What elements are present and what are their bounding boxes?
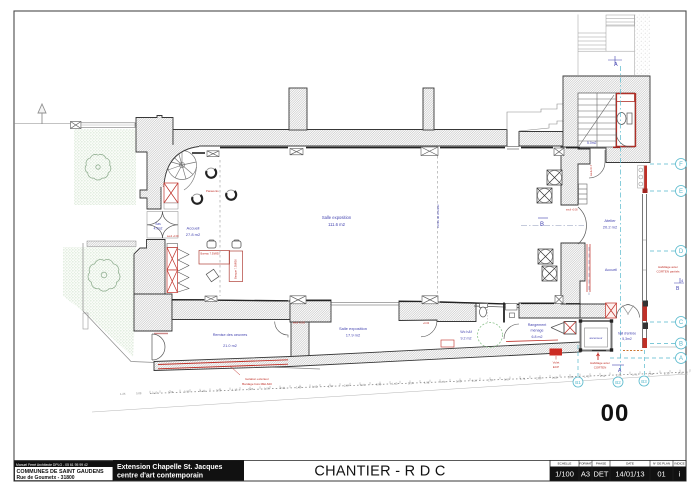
svg-text:Isolation extérieur: Isolation extérieur [245, 377, 269, 381]
svg-text:Salle exposition: Salle exposition [339, 326, 367, 331]
svg-text:Rangement: Rangement [528, 323, 547, 327]
svg-text:2.16: 2.16 [408, 381, 414, 385]
svg-text:Salle exposition: Salle exposition [322, 215, 352, 220]
svg-text:2.38: 2.38 [536, 376, 542, 380]
svg-text:B2: B2 [615, 380, 621, 385]
svg-text:A: A [614, 62, 618, 68]
svg-text:Sas: Sas [155, 222, 161, 226]
svg-text:00: 00 [601, 400, 630, 427]
svg-text:Banque 7.39/830: Banque 7.39/830 [234, 259, 238, 279]
svg-text:COMMUNES DE SAINT GAUDENS: COMMUNES DE SAINT GAUDENS [17, 469, 105, 475]
svg-text:seuil +0.00: seuil +0.00 [293, 322, 306, 325]
svg-text:F: F [679, 162, 683, 168]
svg-text:5.0m2: 5.0m2 [587, 141, 597, 145]
svg-text:A3: A3 [581, 470, 590, 479]
svg-text:ECP: ECP [553, 365, 559, 369]
svg-text:1.17: 1.17 [678, 371, 684, 375]
svg-text:N° DE PLAN: N° DE PLAN [653, 462, 670, 466]
svg-text:CORTEN: CORTEN [594, 366, 607, 370]
svg-text:0.83: 0.83 [568, 375, 574, 379]
svg-text:Volet: Volet [553, 361, 560, 365]
svg-text:2.27: 2.27 [472, 379, 478, 383]
svg-text:0.95: 0.95 [184, 389, 190, 393]
svg-text:INDICE: INDICE [674, 462, 684, 466]
svg-text:2.12: 2.12 [600, 374, 606, 378]
svg-text:1.06: 1.06 [616, 373, 622, 377]
svg-text:Bureau 7.39/830: Bureau 7.39/830 [201, 252, 221, 256]
svg-text:6.8 m2: 6.8 m2 [532, 335, 543, 339]
svg-text:Extension Chapelle St. Jacques: Extension Chapelle St. Jacques [117, 464, 223, 471]
svg-text:01: 01 [657, 470, 665, 479]
svg-text:D: D [679, 249, 684, 255]
svg-text:PHASE: PHASE [596, 462, 606, 466]
svg-text:C: C [679, 320, 684, 326]
svg-text:A: A [679, 356, 683, 362]
svg-text:1.49: 1.49 [584, 374, 590, 378]
svg-text:Manuel Ferré Architecte DPLG -: Manuel Ferré Architecte DPLG - 05 61 95 … [16, 463, 88, 467]
svg-text:B: B [540, 222, 544, 228]
svg-text:CORTEN partiels: CORTEN partiels [656, 270, 680, 274]
svg-text:2.21: 2.21 [280, 386, 286, 390]
svg-text:Paravents: Paravents [206, 189, 219, 193]
svg-text:4.9m2: 4.9m2 [154, 227, 163, 231]
svg-text:Bardage bois MEL620: Bardage bois MEL620 [242, 382, 272, 386]
svg-text:0.76: 0.76 [248, 387, 254, 391]
svg-text:2.05: 2.05 [216, 388, 222, 392]
svg-text:B1: B1 [575, 380, 581, 385]
svg-text:1.02: 1.02 [424, 380, 430, 384]
svg-text:B: B [679, 342, 683, 348]
svg-text:Atelier: Atelier [604, 218, 616, 223]
svg-text:FORMAT: FORMAT [579, 462, 592, 466]
svg-text:2.10: 2.10 [152, 391, 158, 395]
svg-text:CHANTIER - R D C: CHANTIER - R D C [314, 464, 445, 480]
svg-text:seuil +0.00: seuil +0.00 [566, 209, 578, 212]
svg-text:0.74: 0.74 [632, 373, 638, 377]
svg-text:1.14: 1.14 [488, 378, 494, 382]
svg-text:ménage: ménage [531, 329, 544, 333]
svg-text:hall d'entrée: hall d'entrée [618, 332, 636, 336]
svg-text:B3: B3 [641, 379, 647, 384]
svg-text:1.67: 1.67 [328, 384, 334, 388]
svg-text:9.2 m2: 9.2 m2 [461, 337, 472, 341]
svg-text:1.32: 1.32 [200, 389, 206, 393]
svg-text:1.62: 1.62 [648, 372, 654, 376]
svg-text:1.71: 1.71 [520, 377, 526, 381]
svg-text:Accueil: Accueil [187, 226, 200, 231]
svg-text:Accueil: Accueil [605, 268, 617, 272]
svg-text:Habillage acier: Habillage acier [658, 265, 678, 269]
svg-text:1.18: 1.18 [232, 388, 238, 392]
svg-text:1/100: 1/100 [555, 470, 574, 479]
svg-text:27.8 m2: 27.8 m2 [186, 232, 201, 237]
svg-text:0.88: 0.88 [136, 391, 142, 395]
svg-text:1.25: 1.25 [120, 392, 126, 396]
svg-text:centre d'art contemporain: centre d'art contemporain [117, 473, 203, 480]
svg-text:1.21: 1.21 [360, 383, 366, 387]
svg-text:1.43: 1.43 [392, 382, 398, 386]
svg-text:Remise des oeuvres: Remise des oeuvres [213, 333, 248, 337]
svg-text:21.0 m2: 21.0 m2 [223, 344, 237, 348]
svg-text:1.54: 1.54 [264, 386, 270, 390]
svg-text:2.30: 2.30 [664, 371, 670, 375]
svg-text:1.46: 1.46 [168, 390, 174, 394]
svg-text:2.34: 2.34 [344, 383, 350, 387]
svg-text:20.2 m2: 20.2 m2 [603, 225, 618, 230]
svg-text:E: E [679, 189, 683, 195]
svg-text:0.79: 0.79 [440, 380, 446, 384]
svg-text:111.6 m2: 111.6 m2 [328, 222, 346, 227]
svg-text:Habillage acier: Habillage acier [590, 361, 610, 365]
svg-text:Wc h&f: Wc h&f [460, 330, 472, 334]
svg-text:Limite de chantier: Limite de chantier [436, 204, 440, 228]
svg-text:DATE: DATE [626, 462, 634, 466]
svg-text:0.97: 0.97 [504, 377, 510, 381]
svg-text:seuil+0.17: seuil+0.17 [590, 164, 593, 176]
svg-text:0.85: 0.85 [376, 382, 382, 386]
svg-text:+0.00: +0.00 [423, 322, 430, 325]
svg-text:14/01/13: 14/01/13 [615, 470, 644, 479]
svg-text:1.26: 1.26 [552, 376, 558, 380]
svg-text:seuil +0.00: seuil +0.00 [167, 235, 179, 238]
svg-text:ECHELLE: ECHELLE [558, 462, 572, 466]
svg-text:ascenseur: ascenseur [590, 336, 603, 340]
svg-text:0.92: 0.92 [312, 385, 318, 389]
svg-text:Rue de Goumetx - 31800: Rue de Goumetx - 31800 [17, 475, 75, 481]
svg-text:17.9 m2: 17.9 m2 [346, 333, 361, 338]
svg-text:DET: DET [594, 470, 609, 479]
svg-text:1.09: 1.09 [296, 385, 302, 389]
svg-text:5,3m2: 5,3m2 [622, 337, 632, 341]
svg-text:1.58: 1.58 [456, 379, 462, 383]
